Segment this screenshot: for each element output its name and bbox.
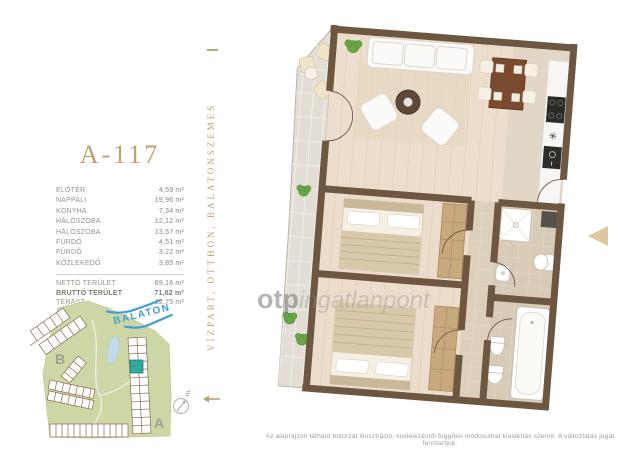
room-label: ELŐTÉR — [56, 186, 85, 196]
room-area-table: ELŐTÉR4,59 m² NAPPALI19,96 m² KONYHA7,34… — [56, 186, 184, 269]
gold-arrow-icon — [588, 226, 608, 246]
bed — [330, 302, 416, 390]
drain-symbol: ✳ — [548, 131, 557, 143]
sink-icon — [495, 265, 510, 282]
room-label: FÜRDŐ — [56, 248, 82, 258]
section-a-label: A — [154, 415, 164, 431]
room-area-value: 3,85 m² — [159, 259, 184, 269]
table-row: FÜRDŐ4,51 m² — [56, 238, 184, 248]
room-label: FÜRDŐ — [56, 238, 82, 248]
table-row: FÜRDŐ3,22 m² — [56, 248, 184, 258]
floor-plan: ✳ — [248, 10, 634, 438]
washer-icon — [541, 211, 559, 228]
bed — [339, 198, 424, 274]
table-row: NETTÓ TERÜLET69,16 m² — [56, 279, 184, 289]
room-label: NAPPALI — [56, 196, 86, 206]
toilet-icon — [533, 254, 555, 272]
room-label: KÖZLEKEDŐ — [56, 259, 101, 269]
room-area-value: 19,96 m² — [155, 196, 184, 206]
apartment-id-title: A-117 — [56, 140, 184, 170]
table-row: ELŐTÉR4,59 m² — [56, 186, 184, 196]
site-map: BALATON B A É — [30, 296, 196, 448]
room-area-value: 3,22 m² — [159, 248, 184, 258]
bedroom-2 — [330, 298, 459, 393]
table-row: HÁLÓSZOBA12,12 m² — [56, 217, 184, 227]
room-area-value: 4,59 m² — [159, 186, 184, 196]
room-label: KONYHA — [56, 207, 87, 217]
room-label: HÁLÓSZOBA — [56, 228, 101, 238]
banner-top-dash — [207, 49, 218, 51]
table-row: KONYHA7,34 m² — [56, 207, 184, 217]
room-area-value: 4,51 m² — [159, 238, 184, 248]
table-row: KÖZLEKEDŐ3,85 m² — [56, 259, 184, 269]
total-label: NETTÓ TERÜLET — [56, 279, 116, 289]
building-strip — [50, 424, 128, 437]
north-label: É — [186, 389, 191, 398]
dining-table — [489, 58, 527, 111]
banner-arrow-icon — [203, 394, 221, 404]
info-panel: A-117 ELŐTÉR4,59 m² NAPPALI19,96 m² KONY… — [56, 140, 184, 308]
table-row: NAPPALI19,96 m² — [56, 196, 184, 206]
highlighted-unit — [130, 360, 143, 373]
total-value: 69,16 m² — [155, 279, 184, 289]
room-label: HÁLÓSZOBA — [56, 217, 101, 227]
table-row: HÁLÓSZOBA13,57 m² — [56, 228, 184, 238]
lake-label: BALATON — [112, 302, 171, 327]
shower-icon — [499, 208, 531, 242]
room-area-value: 13,57 m² — [155, 228, 184, 238]
cooktop-icon — [546, 96, 566, 123]
bedroom-1 — [339, 195, 467, 278]
location-tagline: VÍZPART, OTTHON, BALATONSZEMES — [199, 68, 223, 386]
section-b-label: B — [55, 351, 65, 367]
disclaimer-text: Az alaprajzon látható bútorzat illusztrá… — [258, 433, 622, 447]
room-area-value: 7,34 m² — [159, 207, 184, 217]
room-area-value: 12,12 m² — [155, 217, 184, 227]
compass-icon: É — [174, 389, 192, 414]
